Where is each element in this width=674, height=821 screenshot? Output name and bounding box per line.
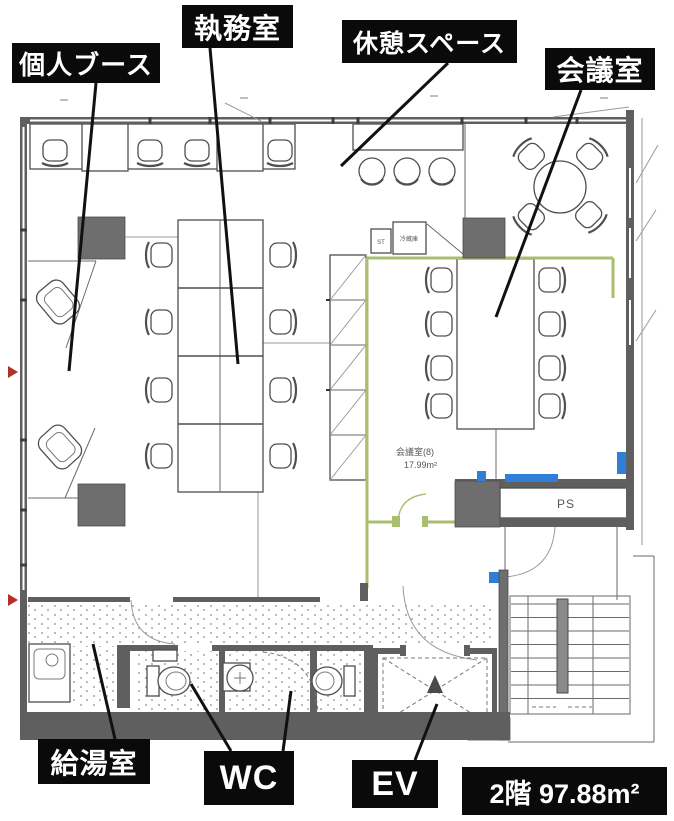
red-arrow-marker [8, 366, 18, 378]
door-arc [505, 527, 555, 577]
toilet [312, 666, 355, 696]
toilet [147, 666, 190, 696]
label-meeting-room: 会議室 [545, 48, 655, 90]
label-kitchenette: 給湯室 [38, 739, 150, 784]
office-desk-island [146, 220, 296, 492]
ps-label: PS [557, 497, 575, 511]
label-office-text: 執務室 [194, 7, 281, 47]
label-floor-area-text: 2階 97.88m² [489, 772, 639, 811]
label-wc-text: WC [220, 759, 279, 798]
personal-booth-lounge-chairs [28, 261, 96, 498]
label-meeting-room-text: 会議室 [556, 49, 643, 89]
label-break-space: 休憩スペース [342, 20, 517, 63]
label-floor-area: 2階 97.88m² [462, 767, 667, 815]
storage-shelf-column [326, 255, 366, 480]
door-latch-green [422, 516, 428, 527]
stair-stringer [557, 599, 568, 693]
meeting-room-area-text: 17.99m² [404, 460, 437, 470]
label-personal-booth-text: 個人ブース [19, 45, 153, 82]
floor-plan-drawing: ST 冷蔵庫 [0, 0, 674, 821]
label-break-space-text: 休憩スペース [353, 24, 506, 60]
label-office: 執務室 [182, 5, 293, 48]
st-unit-label: ST [377, 240, 385, 246]
booth-divider-panel [217, 124, 263, 171]
break-space: ST 冷蔵庫 [353, 124, 465, 254]
meeting-room-name-text: 会議室(8) [396, 446, 434, 457]
round-meeting-table [511, 136, 610, 237]
elevator-arrow [427, 675, 443, 693]
structural-pillars-west [78, 217, 125, 526]
conference-table [426, 259, 565, 479]
structural-pillar-center [463, 218, 505, 258]
red-arrow-marker [8, 594, 18, 606]
label-personal-booth: 個人ブース [12, 43, 160, 83]
wash-basin [223, 663, 253, 691]
door-hinge-green [392, 516, 400, 527]
pipe-shaft-ps: PS [455, 479, 633, 527]
wc-shelf [153, 650, 177, 661]
entry-markers-red [8, 366, 18, 606]
label-elevator-text: EV [371, 765, 418, 804]
office-window-counter [30, 124, 295, 171]
label-kitchenette-text: 給湯室 [50, 742, 137, 782]
refrigerator-label: 冷蔵庫 [400, 235, 418, 243]
floor-plan-page: ST 冷蔵庫 [0, 0, 674, 821]
label-wc: WC [204, 751, 294, 805]
label-elevator: EV [352, 760, 438, 808]
door-swing-line [427, 224, 463, 254]
staircase [508, 556, 654, 742]
